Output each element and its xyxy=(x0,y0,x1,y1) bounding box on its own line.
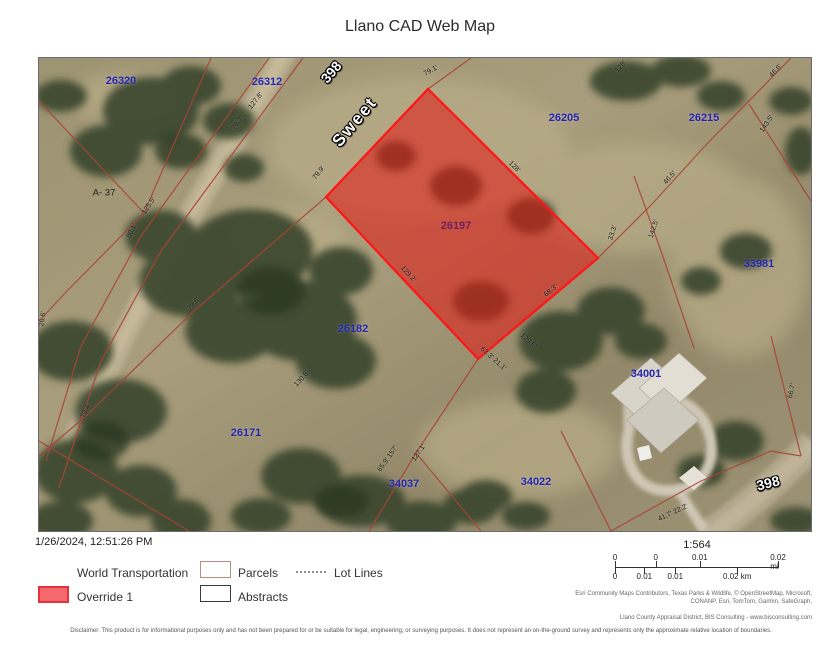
dim-label: 128' xyxy=(507,160,521,174)
dim-label: 128' xyxy=(614,60,628,74)
dim-label: 41.7' 22.2' xyxy=(657,503,689,523)
parcel-id-label: 34022 xyxy=(521,476,552,488)
dim-label: 79.4' xyxy=(80,403,93,420)
dim-label: 142.5' xyxy=(648,219,660,239)
parcel-id-label: 26171 xyxy=(231,427,262,439)
road-label: 398 xyxy=(317,58,344,86)
scalebar-ticks: 000.010.02 mi00.010.010.02 km xyxy=(615,552,778,586)
dim-label: 127.1' xyxy=(411,443,428,462)
dim-label: 66.7' xyxy=(787,383,797,399)
legend-item-lot-lines: Lot Lines xyxy=(334,566,383,580)
scale-tick xyxy=(615,567,616,574)
parcel-id-label: 34001 xyxy=(631,368,662,380)
dim-label: 79.1' xyxy=(423,64,440,77)
override-swatch-icon xyxy=(38,586,69,603)
dim-label: 78.7' xyxy=(231,115,246,131)
scale-tick xyxy=(737,567,738,574)
dim-label: 46.6' xyxy=(768,63,783,79)
parcel-id-label: 26205 xyxy=(549,112,580,124)
legend-item-world-transportation: World Transportation xyxy=(77,566,188,580)
parcels-swatch-icon xyxy=(200,561,231,578)
scale-tick xyxy=(675,567,676,574)
parcel-id-label: 26320 xyxy=(106,75,137,87)
road-label: 398 xyxy=(755,472,782,493)
map-labels-layer: 398Sweet39826320263122620526215339812618… xyxy=(39,58,811,531)
abstract-label: A- 37 xyxy=(93,188,116,199)
dim-label: 129.6' xyxy=(519,332,538,350)
scale-tick xyxy=(644,567,645,574)
legend-item-parcels: Parcels xyxy=(238,566,278,580)
disclaimer-text: Disclaimer: This product is for informat… xyxy=(18,628,824,634)
dim-label: 46.5' xyxy=(662,170,677,186)
dim-label: 68.3' xyxy=(543,284,559,299)
legend-item-abstracts: Abstracts xyxy=(238,590,288,604)
dim-label: 125.5' xyxy=(141,196,158,215)
dim-label: 143.5' xyxy=(759,114,776,133)
dim-label: 130.8' xyxy=(293,370,311,389)
district-credit: Llano County Appraisal District, BIS Con… xyxy=(430,615,812,621)
parcel-id-label: 26182 xyxy=(338,323,369,335)
parcel-hl-label: 26197 xyxy=(441,220,472,232)
page: Llano CAD Web Map xyxy=(0,0,840,649)
parcel-id-label: 33981 xyxy=(744,258,775,270)
scale-tick xyxy=(778,561,779,568)
dim-label: 63.3' 21.1' xyxy=(479,346,507,373)
legend-item-override-1: Override 1 xyxy=(77,590,133,604)
parcel-id-label: 26312 xyxy=(252,76,283,88)
dim-label: 79.9' xyxy=(312,165,327,181)
parcel-id-label: 34037 xyxy=(389,478,420,490)
export-timestamp: 1/26/2024, 12:51:26 PM xyxy=(35,536,152,548)
basemap-attribution: Esri Community Maps Contributors, Texas … xyxy=(560,590,812,606)
dim-label: 80.1' xyxy=(126,223,139,240)
scale-tick xyxy=(700,561,701,568)
abstracts-swatch-icon xyxy=(200,585,231,602)
scale-ratio: 1:564 xyxy=(598,539,796,551)
dim-label: 33.3' xyxy=(607,225,618,241)
scalebar-line xyxy=(615,567,778,568)
dim-label: 26.6' xyxy=(38,311,47,327)
parcel-id-label: 26215 xyxy=(689,112,720,124)
scale-tick xyxy=(656,561,657,568)
lot-lines-swatch-icon xyxy=(296,571,326,573)
dim-label: 129.2' xyxy=(399,265,417,284)
map-view[interactable]: 398Sweet39826320263122620526215339812618… xyxy=(38,57,812,532)
dim-label: 65.9' 157' xyxy=(377,445,400,474)
road-name-label: Sweet xyxy=(328,93,381,151)
dim-label: 79.8' xyxy=(186,296,201,312)
scalebar: 1:564 000.010.02 mi00.010.010.02 km xyxy=(598,539,796,586)
page-title: Llano CAD Web Map xyxy=(0,18,840,36)
dim-label: 127.8' xyxy=(247,91,264,110)
